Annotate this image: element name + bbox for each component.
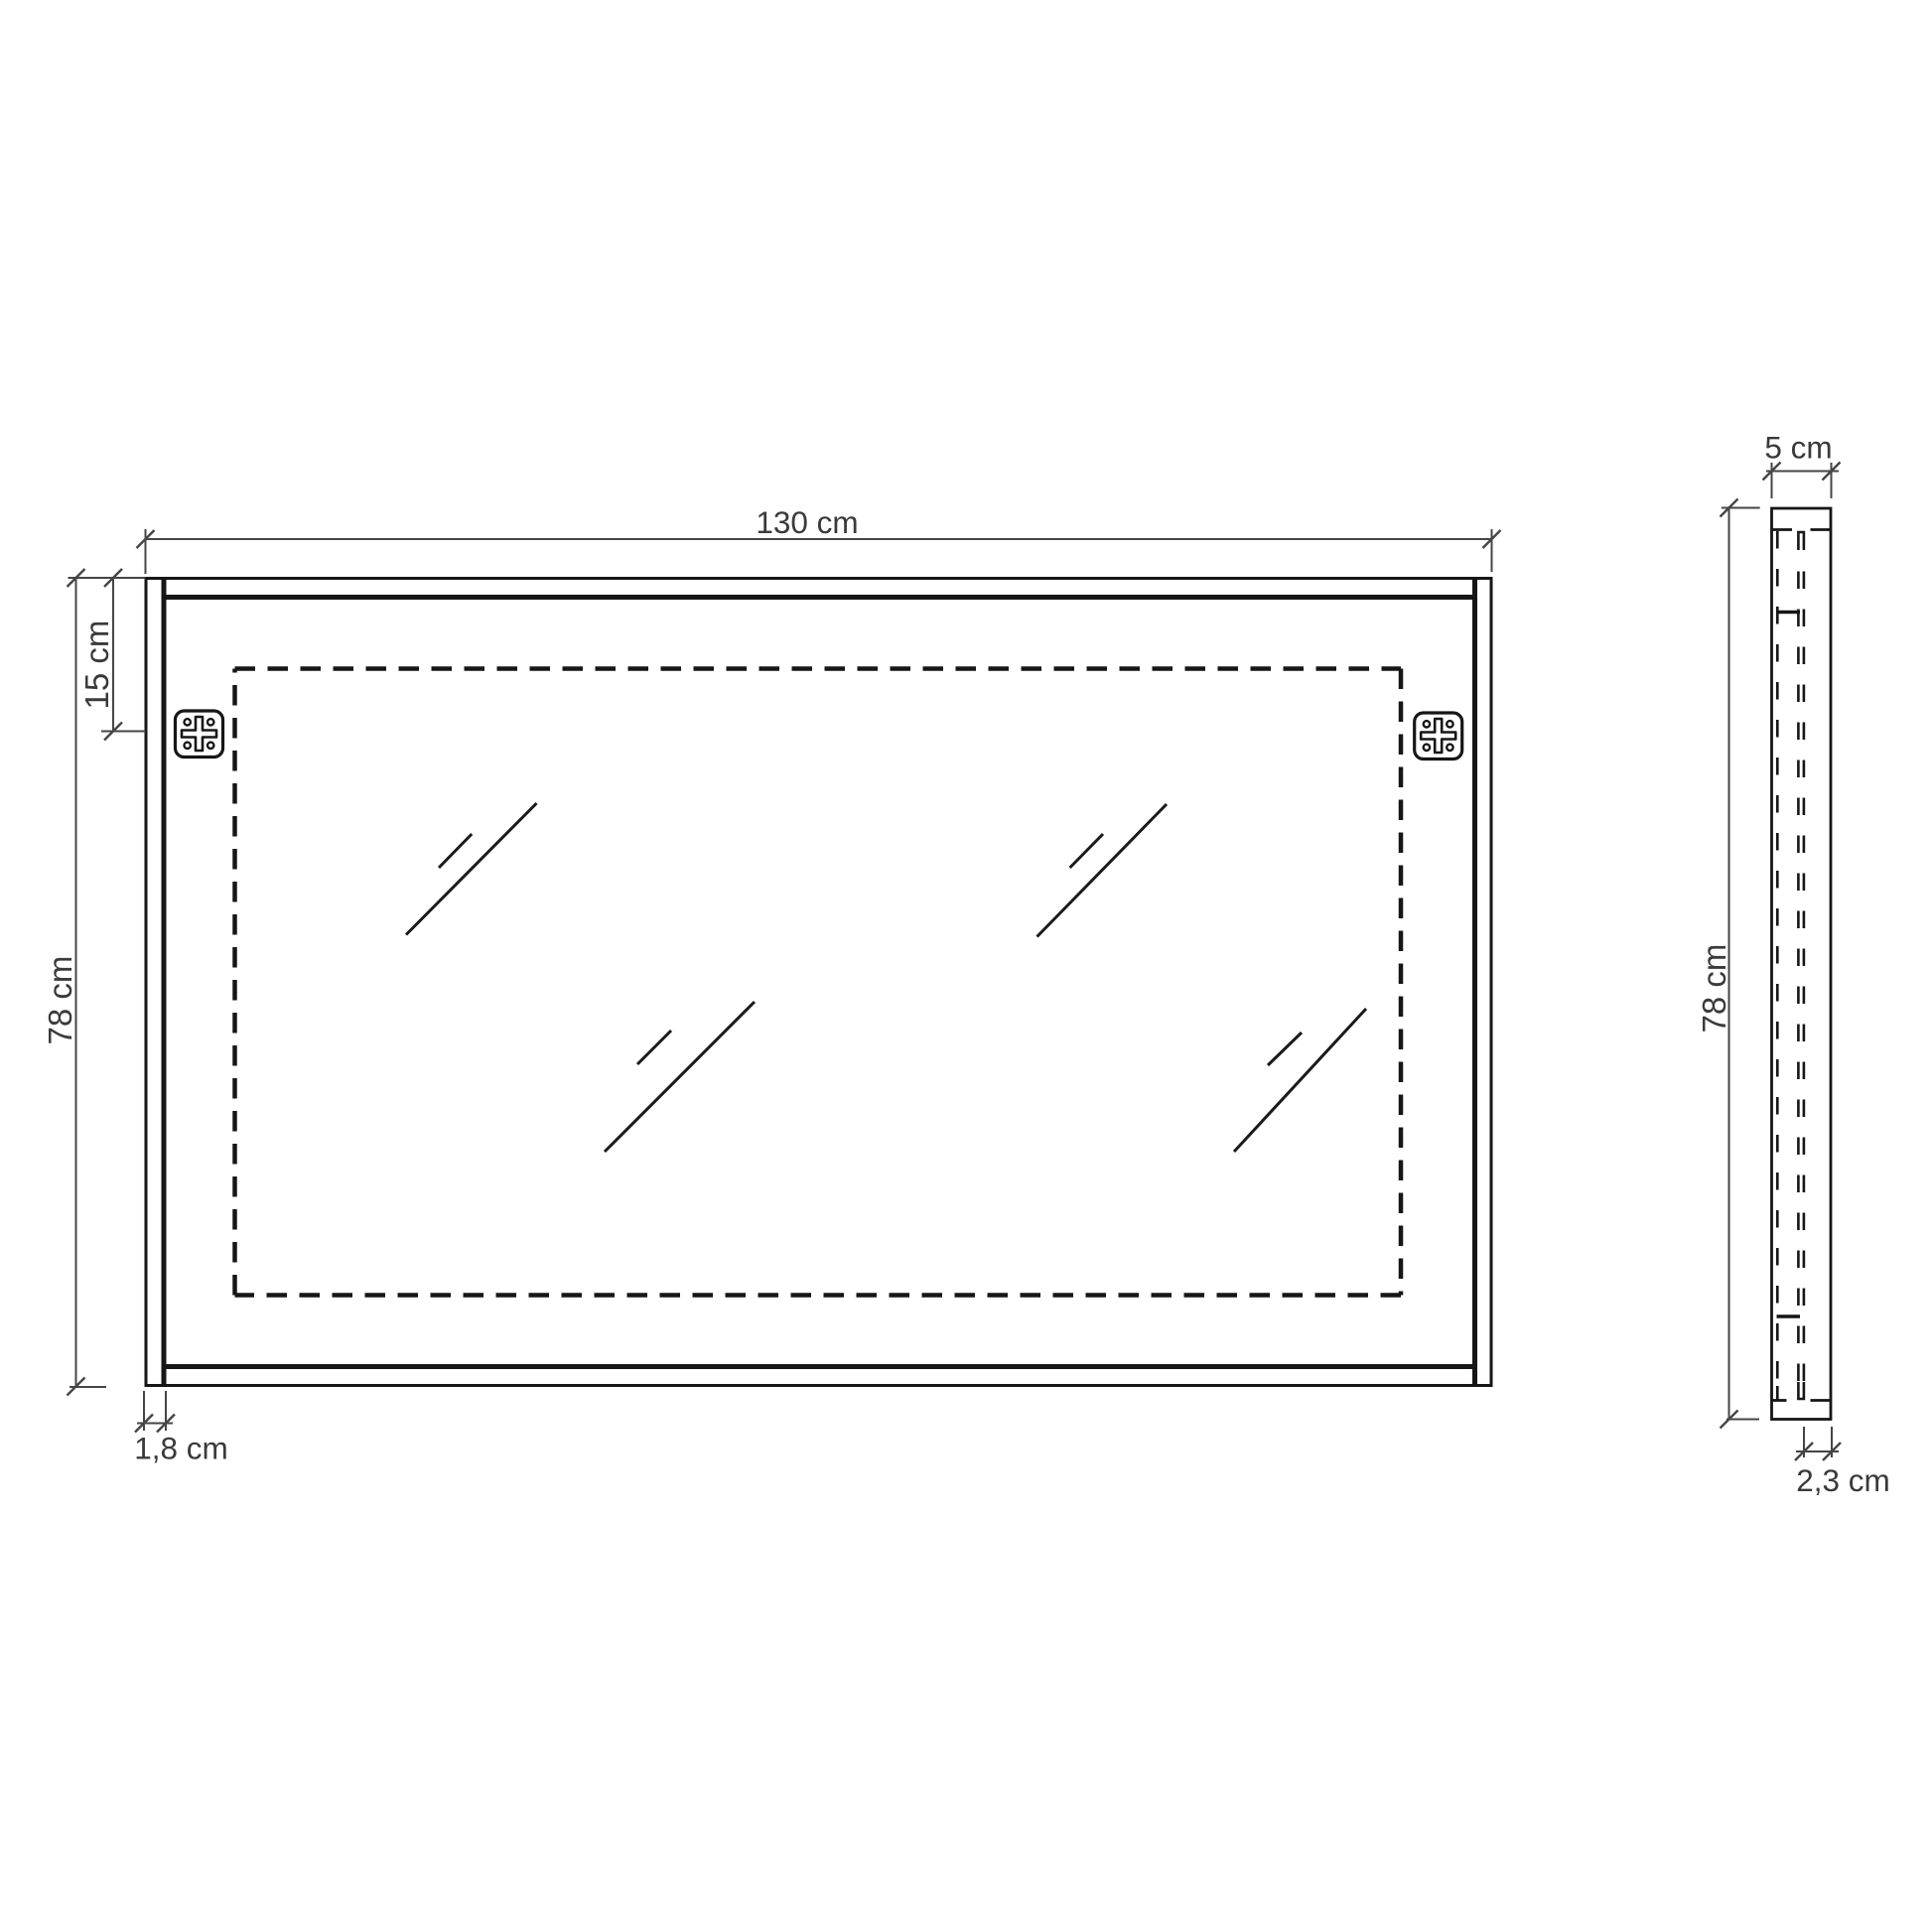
svg-text:78 cm: 78 cm xyxy=(1696,944,1732,1034)
svg-text:78 cm: 78 cm xyxy=(42,956,78,1045)
svg-text:130 cm: 130 cm xyxy=(756,504,858,540)
svg-text:5 cm: 5 cm xyxy=(1764,430,1832,466)
svg-text:2,3 cm: 2,3 cm xyxy=(1796,1462,1890,1498)
svg-text:15 cm: 15 cm xyxy=(78,621,115,710)
svg-text:1,8 cm: 1,8 cm xyxy=(134,1431,228,1466)
